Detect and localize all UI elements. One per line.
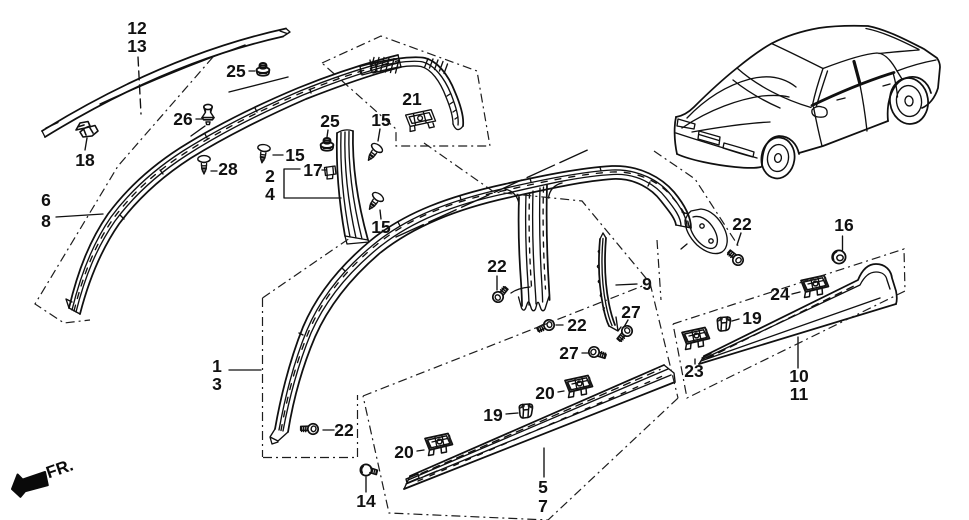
- svg-text:22: 22: [732, 214, 752, 234]
- svg-text:27: 27: [559, 343, 578, 363]
- svg-text:22: 22: [334, 420, 354, 440]
- svg-text:2: 2: [265, 166, 275, 186]
- svg-text:FR.: FR.: [44, 455, 76, 482]
- svg-text:15: 15: [285, 145, 305, 165]
- svg-text:14: 14: [356, 491, 376, 511]
- svg-text:13: 13: [127, 36, 147, 56]
- svg-text:20: 20: [394, 442, 414, 462]
- svg-text:11: 11: [790, 384, 809, 404]
- svg-text:10: 10: [789, 366, 809, 386]
- svg-text:17: 17: [303, 160, 322, 180]
- svg-text:21: 21: [402, 89, 422, 109]
- svg-text:27: 27: [621, 302, 640, 322]
- svg-text:5: 5: [538, 477, 548, 497]
- svg-text:28: 28: [218, 159, 238, 179]
- svg-text:23: 23: [684, 361, 704, 381]
- svg-text:18: 18: [75, 150, 95, 170]
- svg-text:25: 25: [320, 111, 340, 131]
- svg-text:8: 8: [41, 211, 51, 231]
- svg-text:16: 16: [834, 215, 854, 235]
- svg-text:4: 4: [265, 184, 275, 204]
- svg-text:6: 6: [41, 190, 51, 210]
- svg-text:7: 7: [538, 496, 548, 516]
- svg-text:3: 3: [212, 374, 222, 394]
- svg-text:19: 19: [742, 308, 762, 328]
- svg-text:25: 25: [226, 61, 246, 81]
- svg-text:15: 15: [371, 217, 391, 237]
- svg-text:22: 22: [487, 256, 507, 276]
- svg-text:26: 26: [173, 109, 193, 129]
- svg-text:12: 12: [127, 18, 147, 38]
- svg-text:19: 19: [483, 405, 503, 425]
- svg-text:15: 15: [371, 110, 391, 130]
- svg-text:20: 20: [535, 383, 555, 403]
- svg-text:22: 22: [567, 315, 587, 335]
- svg-text:1: 1: [212, 356, 222, 376]
